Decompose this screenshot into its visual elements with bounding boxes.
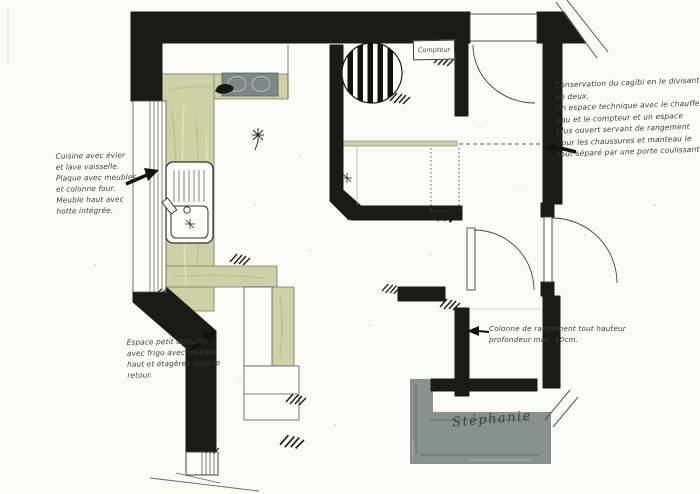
door-swing-arc-icon [474, 230, 534, 290]
compteur-label: Compteur [418, 46, 450, 55]
counter-edge-line [343, 141, 457, 146]
striped-circle-icon [342, 42, 402, 104]
annotation-breakfast: Espace petit déjeuner avec frigo avec me… [127, 335, 221, 381]
floor-plan-drawing [0, 0, 700, 494]
window-bottom [150, 452, 259, 491]
door-swing-arc-icon [552, 218, 617, 283]
annotation-storage-column: Colonne de rangement tout hauteur profon… [489, 323, 626, 345]
compteur-label-box: Compteur [413, 40, 455, 61]
annotation-cagibi: Conservation du cagibi en le divisant en… [555, 74, 700, 160]
hob-icon [215, 73, 278, 96]
door-top [470, 14, 537, 103]
annotation-line: Cuisine avec évier [55, 149, 136, 161]
annotation-line: haut et étagères dans le [127, 357, 220, 370]
sink-icon [162, 162, 213, 243]
annotation-line: profondeur max. 50cm. [489, 334, 626, 345]
floor-plan-page: Cuisine avec évier et lave vaisselle. Pl… [0, 0, 700, 494]
door-center [467, 228, 534, 290]
window-left [133, 101, 166, 292]
annotation-line: Plaque avec meubles [56, 171, 137, 183]
door-right [544, 217, 617, 283]
annotation-line: retour. [127, 368, 220, 381]
dashed-partition [431, 144, 542, 211]
door-swing-arc-icon [473, 45, 535, 103]
annotation-line: hotte intégrée. [56, 204, 137, 216]
annotation-kitchen: Cuisine avec évier et lave vaisselle. Pl… [55, 149, 137, 216]
annotation-arrow-icon [467, 326, 489, 336]
annotation-line: Colonne de rangement tout hauteur [489, 323, 626, 334]
